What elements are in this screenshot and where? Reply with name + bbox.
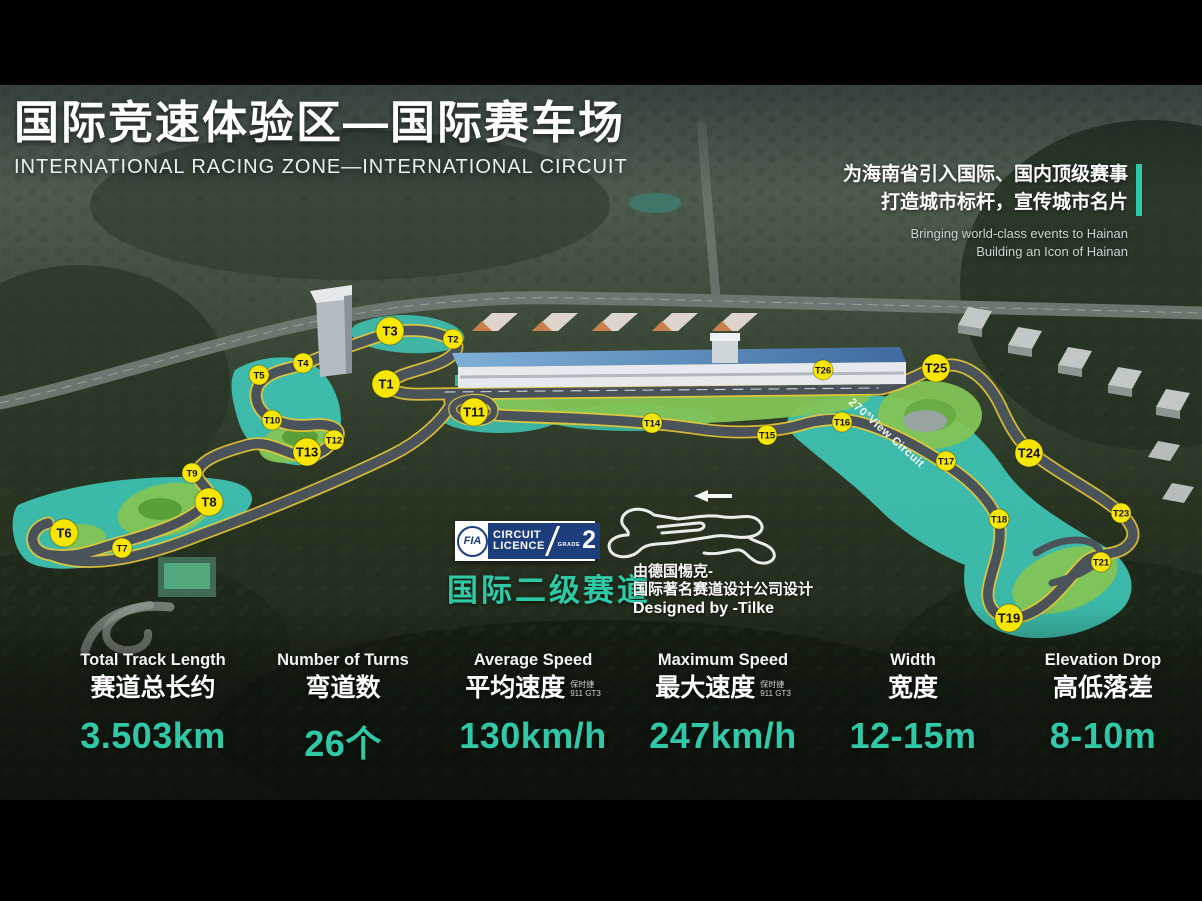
pond [629,193,681,213]
turn-marker: T19 [995,604,1023,632]
tagline-en-line2: Building an Icon of Hainan [843,243,1128,261]
tagline-zh-line2: 打造城市标杆，宣传城市名片 [843,189,1134,217]
stat-column: Number of Turns 弯道数 26个 [248,651,438,767]
tagline-accent-bar [1136,164,1142,216]
stat-note: 保时捷 911 GT3 [760,680,791,703]
fia-circuit-licence-badge: FIA CIRCUIT LICENCE GRADE 2 [455,521,595,561]
turn-marker: T4 [293,353,313,373]
turn-marker: T11 [460,398,488,426]
direction-arrow-icon [694,490,732,502]
tagline-en: Bringing world-class events to Hainan Bu… [843,225,1134,261]
svg-text:T18: T18 [991,514,1007,525]
stat-column: Width 宽度 12-15m [818,651,1008,767]
svg-text:T23: T23 [1113,508,1129,519]
stat-column: Maximum Speed 最大速度 保时捷 911 GT3 247km/h [628,651,818,767]
svg-text:T11: T11 [463,405,485,420]
svg-text:T4: T4 [297,358,309,369]
stat-value: 8-10m [1008,715,1198,757]
turn-marker: T3 [376,317,404,345]
stat-label-en: Average Speed [438,651,628,670]
svg-text:T14: T14 [644,418,661,429]
turn-marker: T12 [324,430,344,450]
stat-value: 26个 [248,715,438,767]
svg-text:T25: T25 [925,361,947,376]
turn-marker: T14 [642,413,662,433]
stat-label-en: Total Track Length [58,651,248,670]
svg-text:T8: T8 [201,495,216,510]
turn-marker: T13 [293,438,321,466]
stat-label-zh: 高低落差 [1053,673,1153,703]
stat-label-row: 弯道数 [248,673,438,703]
turn-marker: T6 [50,519,78,547]
helipad [903,410,947,432]
turn-marker: T2 [443,329,463,349]
stat-column: Average Speed 平均速度 保时捷 911 GT3 130km/h [438,651,628,767]
fia-badge-line2: LICENCE [493,541,545,552]
turn-marker: T7 [112,538,132,558]
turn-marker: T16 [832,412,852,432]
page-title: 国际竞速体验区—国际赛车场 [14,93,628,154]
svg-text:T26: T26 [815,365,831,376]
svg-text:T10: T10 [264,415,280,426]
designer-credit: 由德国惕克- 国际著名赛道设计公司设计 Designed by -Tilke [633,563,813,619]
stats-row: Total Track Length 赛道总长约 3.503km Number … [58,651,1198,767]
slide-content-area: 270°View Circuit T1T2T3T4T5T6T7T8T9T10T1… [0,85,1202,800]
tagline-block: 为海南省引入国际、国内顶级赛事 打造城市标杆，宣传城市名片 Bringing w… [843,161,1134,261]
stat-label-en: Maximum Speed [628,651,818,670]
svg-text:T7: T7 [116,543,127,554]
stat-label-row: 最大速度 保时捷 911 GT3 [628,673,818,703]
slide-canvas: { "slide": { "title_zh": "国际竞速体验区—国际赛车场"… [0,0,1202,901]
stat-label-row: 平均速度 保时捷 911 GT3 [438,673,628,703]
circuit-outline-sketch [598,487,788,567]
turn-marker: T9 [182,463,202,483]
turn-marker: T24 [1015,439,1043,467]
stat-value: 130km/h [438,715,628,757]
turn-marker: T21 [1091,552,1111,572]
stat-column: Elevation Drop 高低落差 8-10m [1008,651,1198,767]
fia-grade-label: GRADE [558,542,580,551]
stat-column: Total Track Length 赛道总长约 3.503km [58,651,248,767]
svg-text:T6: T6 [56,526,71,541]
svg-text:T2: T2 [447,334,458,345]
stat-note: 保时捷 911 GT3 [570,680,601,703]
fia-badge-text: CIRCUIT LICENCE [493,530,545,552]
svg-text:T21: T21 [1093,557,1110,568]
fia-logo: FIA [457,523,488,559]
stat-value: 247km/h [628,715,818,757]
stat-label-en: Width [818,651,1008,670]
stat-label-row: 宽度 [818,673,1008,703]
stat-label-zh: 宽度 [888,673,938,703]
svg-text:T19: T19 [998,611,1020,626]
svg-text:T17: T17 [938,456,954,467]
svg-text:T13: T13 [296,445,318,460]
svg-text:T3: T3 [382,324,397,339]
stat-label-en: Number of Turns [248,651,438,670]
stat-value: 3.503km [58,715,248,757]
turn-marker: T5 [249,365,269,385]
svg-text:T24: T24 [1018,446,1041,461]
turn-marker: T8 [195,488,223,516]
title-block: 国际竞速体验区—国际赛车场 INTERNATIONAL RACING ZONE—… [14,93,628,179]
stat-label-zh: 平均速度 [465,673,565,703]
tagline-en-line1: Bringing world-class events to Hainan [843,225,1128,243]
svg-text:T9: T9 [186,468,197,479]
stat-value: 12-15m [818,715,1008,757]
tagline-zh-line1: 为海南省引入国际、国内顶级赛事 [843,161,1134,189]
fia-roundel-icon: FIA [457,526,488,557]
service-building [158,557,216,597]
turn-marker: T15 [757,425,777,445]
page-subtitle: INTERNATIONAL RACING ZONE—INTERNATIONAL … [14,156,628,179]
turn-marker: T25 [922,354,950,382]
stat-label-zh: 弯道数 [305,673,380,703]
svg-text:T15: T15 [759,430,776,441]
turn-marker: T1 [372,370,400,398]
designer-en: Designed by -Tilke [633,599,813,619]
turn-marker: T10 [262,410,282,430]
stat-label-zh: 赛道总长约 [90,673,215,703]
svg-text:T1: T1 [378,377,393,392]
svg-text:T12: T12 [326,435,342,446]
fia-grade: GRADE 2 [558,529,600,554]
fia-badge-body: CIRCUIT LICENCE GRADE 2 [488,523,600,559]
svg-text:T5: T5 [253,370,265,381]
stat-label-en: Elevation Drop [1008,651,1198,670]
stat-label-row: 赛道总长约 [58,673,248,703]
turn-marker: T18 [989,509,1009,529]
designer-zh-line2: 国际著名赛道设计公司设计 [633,581,813,599]
stat-label-row: 高低落差 [1008,673,1198,703]
fia-licence-block: FIA CIRCUIT LICENCE GRADE 2 国际二级赛道 [455,521,595,561]
stat-label-zh: 最大速度 [655,673,755,703]
licence-grade-title: 国际二级赛道 [447,565,651,610]
svg-text:T16: T16 [834,417,850,428]
turn-marker: T17 [936,451,956,471]
turn-marker: T23 [1111,503,1131,523]
turn-marker: T26 [813,360,833,380]
